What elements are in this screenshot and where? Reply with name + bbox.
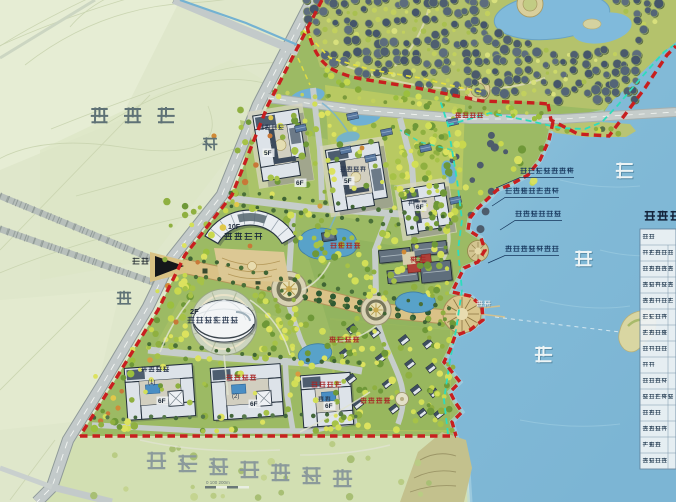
svg-text:6F: 6F bbox=[250, 401, 258, 408]
svg-text:(2): (2) bbox=[232, 394, 239, 400]
svg-text:5F: 5F bbox=[344, 178, 352, 185]
svg-text:6F: 6F bbox=[296, 180, 304, 187]
svg-text:0 100 200m: 0 100 200m bbox=[206, 480, 230, 485]
svg-text:5F: 5F bbox=[264, 150, 272, 157]
svg-text:2F: 2F bbox=[190, 307, 199, 316]
svg-text:6F: 6F bbox=[325, 403, 333, 410]
svg-text:(1): (1) bbox=[148, 380, 155, 386]
svg-text:10F: 10F bbox=[228, 224, 241, 231]
svg-text:6F: 6F bbox=[416, 204, 424, 211]
svg-text:6F: 6F bbox=[158, 398, 166, 405]
